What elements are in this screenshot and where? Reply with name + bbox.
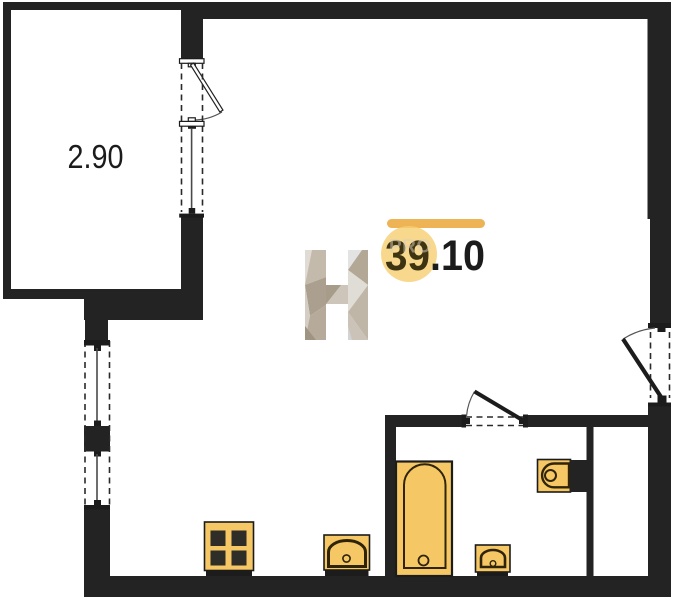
svg-text:PRO: PRO (389, 237, 432, 258)
svg-text:.10: .10 (430, 232, 485, 280)
svg-text:2.90: 2.90 (68, 138, 124, 175)
